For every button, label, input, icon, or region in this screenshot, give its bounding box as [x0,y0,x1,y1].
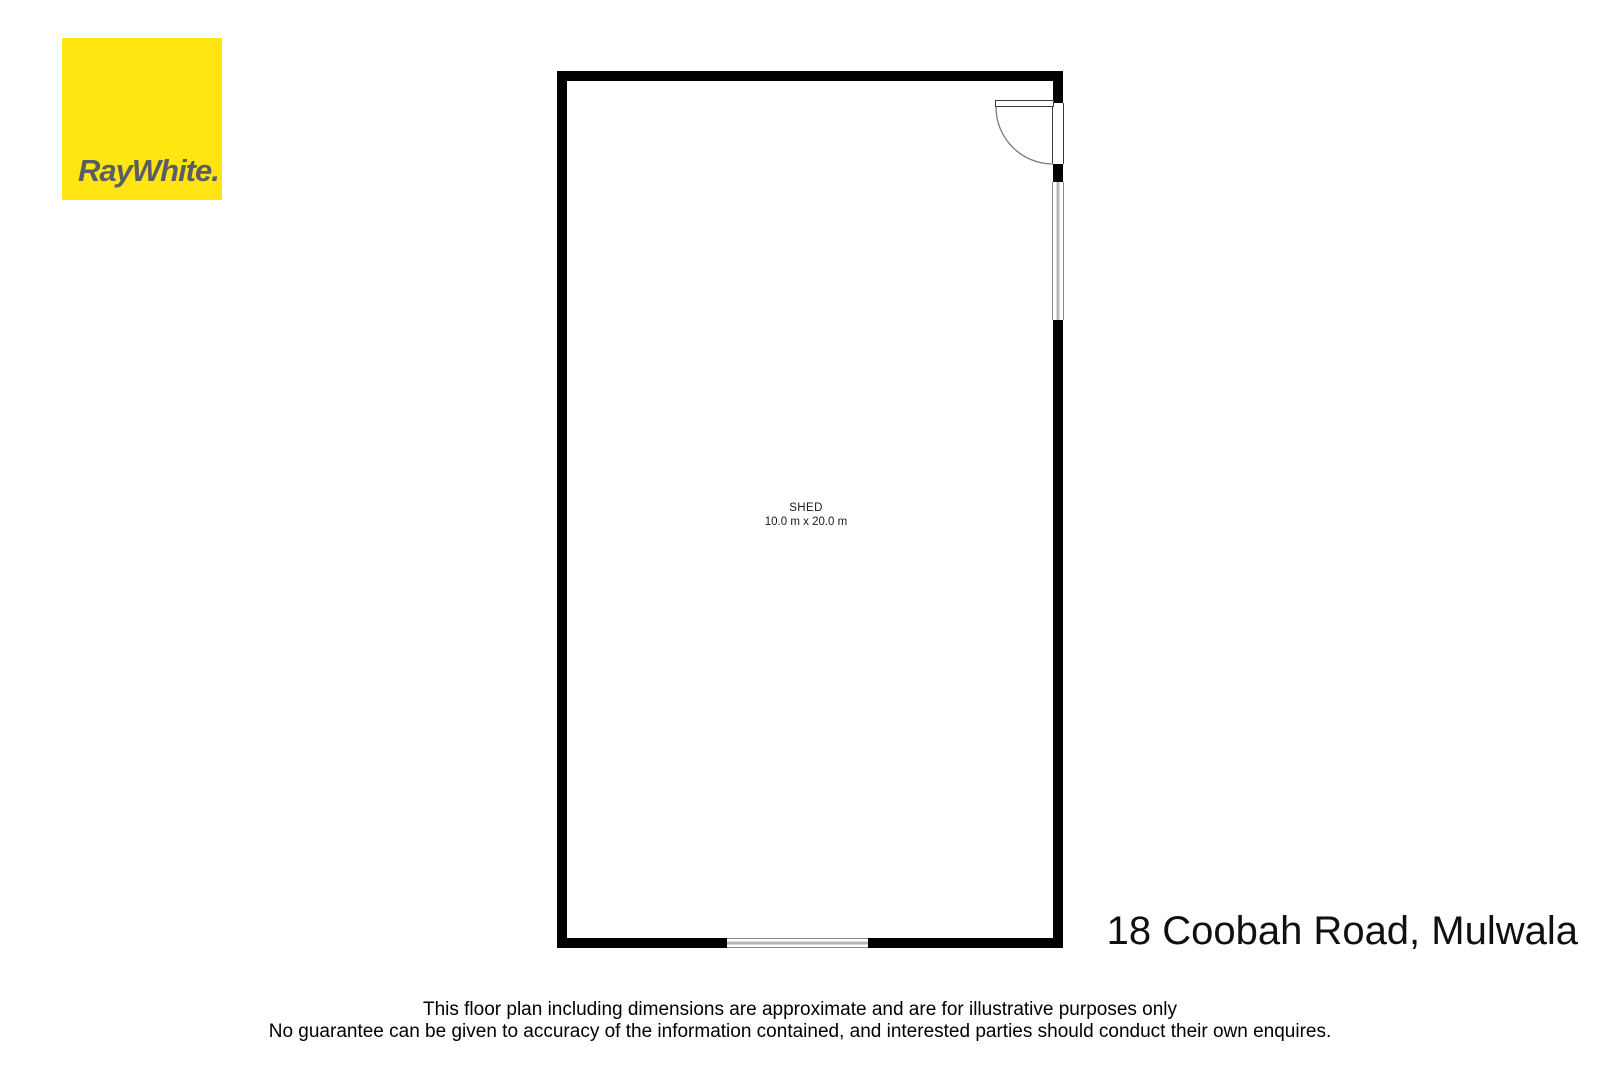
door-opening [1052,103,1064,164]
disclaimer-block: This floor plan including dimensions are… [0,999,1600,1042]
room-name: SHED [656,501,956,515]
window-right-icon [1052,182,1064,320]
disclaimer-line-1: This floor plan including dimensions are… [0,999,1600,1021]
room-label-block: SHED 10.0 m x 20.0 m [656,501,956,529]
window-glass-line [1057,182,1060,320]
disclaimer-line-2: No guarantee can be given to accuracy of… [0,1021,1600,1043]
wall-left [557,71,567,948]
wall-top [557,71,1063,81]
window-glass-line [727,942,868,945]
door-leaf [995,100,1054,107]
property-address: 18 Coobah Road, Mulwala [1107,908,1578,955]
room-dimensions: 10.0 m x 20.0 m [656,515,956,529]
window-bottom-icon [727,938,868,948]
